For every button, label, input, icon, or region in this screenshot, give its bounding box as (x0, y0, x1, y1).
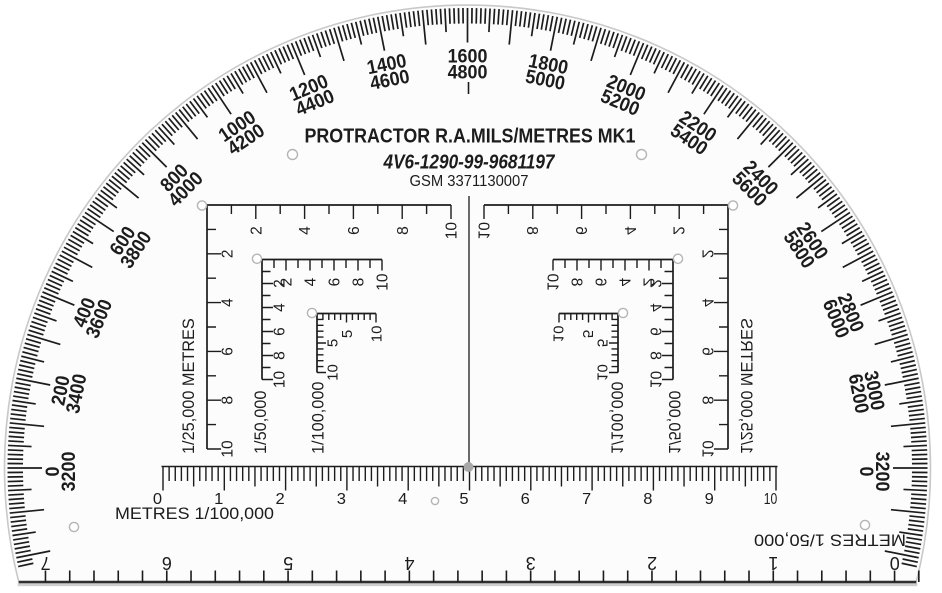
svg-text:6: 6 (162, 553, 172, 573)
svg-text:1/25,000 METRES: 1/25,000 METRES (180, 318, 198, 454)
svg-text:9: 9 (705, 491, 714, 508)
svg-text:7: 7 (582, 491, 591, 508)
svg-text:6: 6 (346, 226, 363, 235)
svg-text:4: 4 (621, 226, 638, 235)
svg-text:10: 10 (368, 326, 385, 343)
svg-text:3: 3 (526, 553, 536, 573)
svg-text:5: 5 (459, 491, 468, 508)
svg-text:GSM 3371130007: GSM 3371130007 (410, 173, 529, 190)
svg-text:8: 8 (351, 278, 368, 287)
svg-text:2: 2 (272, 279, 289, 288)
svg-text:4: 4 (220, 298, 237, 307)
svg-text:METRES 1/50,000: METRES 1/50,000 (754, 531, 906, 550)
svg-text:4800: 4800 (448, 62, 488, 84)
svg-text:8: 8 (395, 226, 412, 235)
svg-text:8: 8 (567, 278, 584, 287)
svg-text:6: 6 (272, 327, 289, 336)
svg-text:PROTRACTOR R.A.MILS/METRES MK1: PROTRACTOR R.A.MILS/METRES MK1 (305, 125, 636, 148)
svg-text:8: 8 (643, 491, 652, 508)
svg-text:2: 2 (646, 279, 663, 288)
svg-text:1/100,000: 1/100,000 (608, 382, 626, 454)
svg-text:5: 5 (324, 339, 341, 347)
svg-text:5: 5 (594, 339, 611, 347)
svg-text:1/50,000: 1/50,000 (665, 391, 683, 454)
svg-text:10: 10 (375, 273, 392, 291)
svg-text:6: 6 (646, 327, 663, 336)
svg-text:6: 6 (591, 278, 608, 287)
svg-text:4: 4 (272, 303, 289, 312)
svg-text:6: 6 (572, 226, 589, 235)
svg-text:2: 2 (670, 226, 687, 235)
svg-text:2: 2 (647, 553, 657, 573)
svg-text:4: 4 (404, 553, 414, 573)
svg-text:2: 2 (276, 491, 285, 508)
svg-text:5: 5 (283, 553, 293, 573)
svg-text:6: 6 (327, 278, 344, 287)
svg-text:10: 10 (444, 222, 461, 240)
svg-text:4: 4 (297, 226, 314, 235)
svg-text:0: 0 (855, 467, 877, 477)
svg-text:4: 4 (398, 491, 407, 508)
svg-text:2: 2 (220, 249, 237, 258)
svg-text:3: 3 (337, 491, 346, 508)
svg-text:4: 4 (615, 277, 632, 286)
svg-text:10: 10 (543, 273, 560, 291)
svg-text:10: 10 (764, 491, 778, 508)
svg-text:METRES 1/100,000: METRES 1/100,000 (115, 505, 274, 523)
svg-text:10: 10 (474, 222, 491, 240)
svg-text:10: 10 (324, 364, 341, 381)
svg-text:5: 5 (579, 330, 596, 338)
svg-text:10: 10 (550, 326, 567, 343)
svg-text:6: 6 (220, 347, 237, 356)
svg-text:1: 1 (768, 553, 778, 573)
svg-text:4: 4 (303, 277, 320, 286)
svg-text:10: 10 (220, 440, 237, 458)
svg-text:8: 8 (220, 396, 237, 405)
svg-text:6: 6 (521, 491, 530, 508)
svg-text:1/50,000: 1/50,000 (252, 391, 270, 454)
svg-text:4: 4 (698, 298, 715, 307)
svg-text:8: 8 (646, 351, 663, 360)
svg-text:10: 10 (594, 364, 611, 381)
svg-text:10: 10 (698, 440, 715, 458)
svg-text:3200: 3200 (58, 451, 80, 491)
svg-text:8: 8 (698, 396, 715, 405)
svg-text:6: 6 (698, 347, 715, 356)
svg-text:10: 10 (272, 371, 289, 389)
svg-text:1/100,000: 1/100,000 (310, 382, 328, 454)
svg-text:2: 2 (248, 226, 265, 235)
svg-text:7: 7 (41, 553, 51, 573)
svg-text:10: 10 (646, 371, 663, 389)
svg-text:8: 8 (523, 226, 540, 235)
svg-text:4: 4 (646, 303, 663, 312)
svg-text:4V6-1290-99-9681197: 4V6-1290-99-9681197 (383, 152, 556, 174)
svg-text:1/25,000 METRES: 1/25,000 METRES (737, 318, 755, 454)
svg-text:2: 2 (698, 249, 715, 258)
svg-text:8: 8 (272, 351, 289, 360)
svg-text:0: 0 (890, 553, 900, 573)
svg-text:5: 5 (339, 330, 356, 338)
